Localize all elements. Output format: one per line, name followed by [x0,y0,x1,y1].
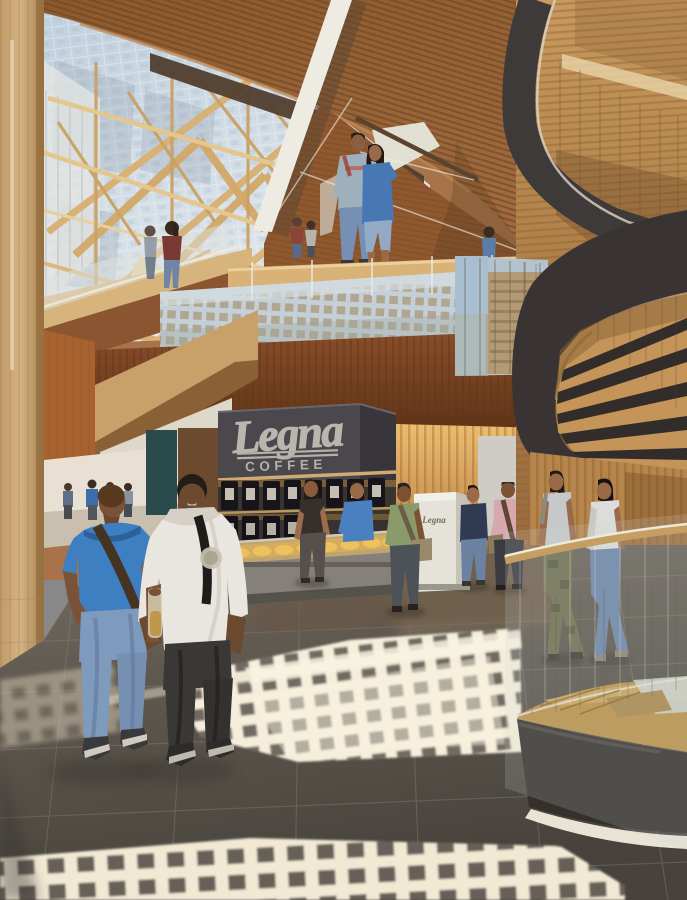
svg-text:Legna: Legna [421,515,446,525]
svg-text:COFFEE: COFFEE [245,457,327,475]
